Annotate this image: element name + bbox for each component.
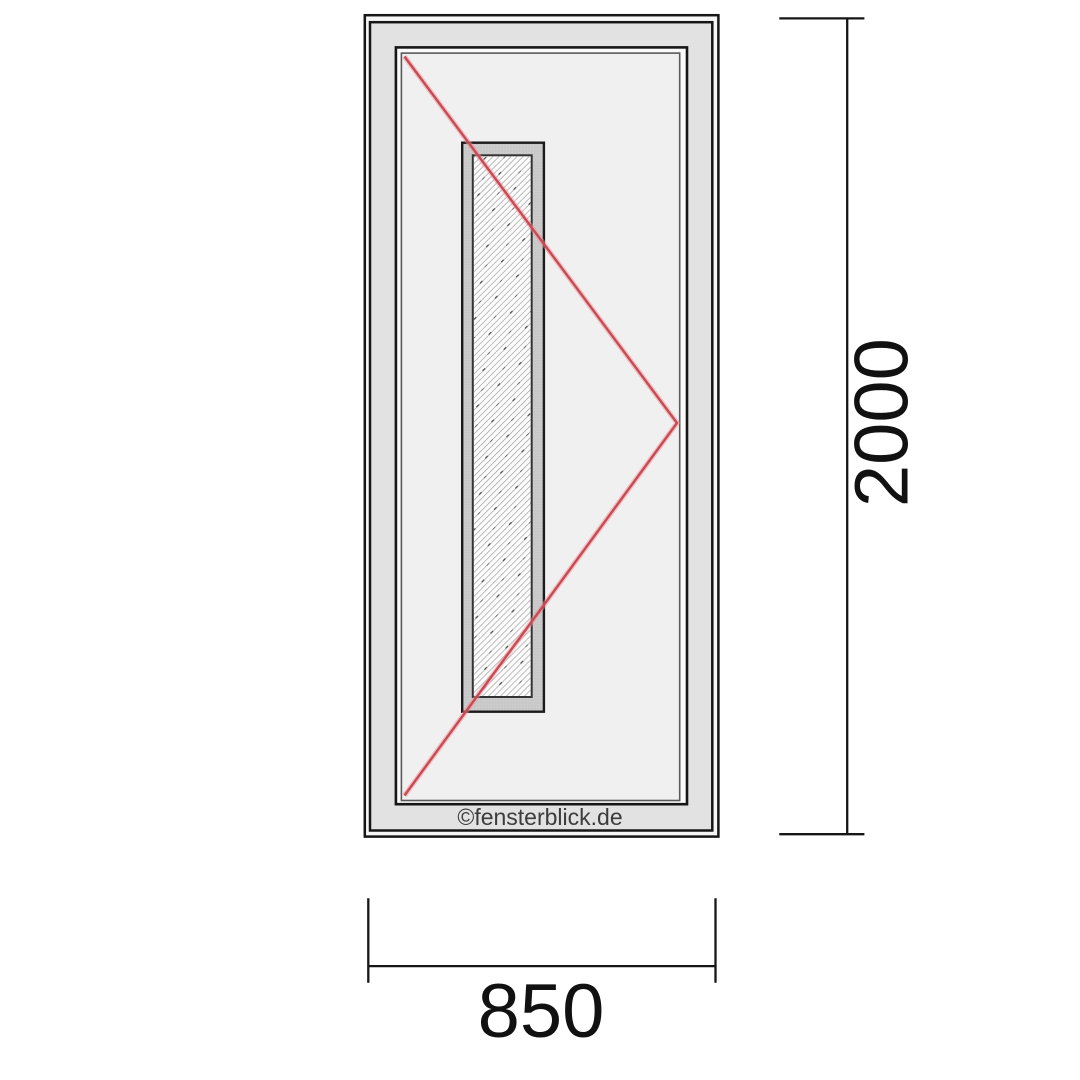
svg-text:2000: 2000 bbox=[840, 338, 925, 507]
svg-text:©fensterblick.de: ©fensterblick.de bbox=[457, 804, 622, 830]
svg-text:850: 850 bbox=[478, 969, 605, 1054]
